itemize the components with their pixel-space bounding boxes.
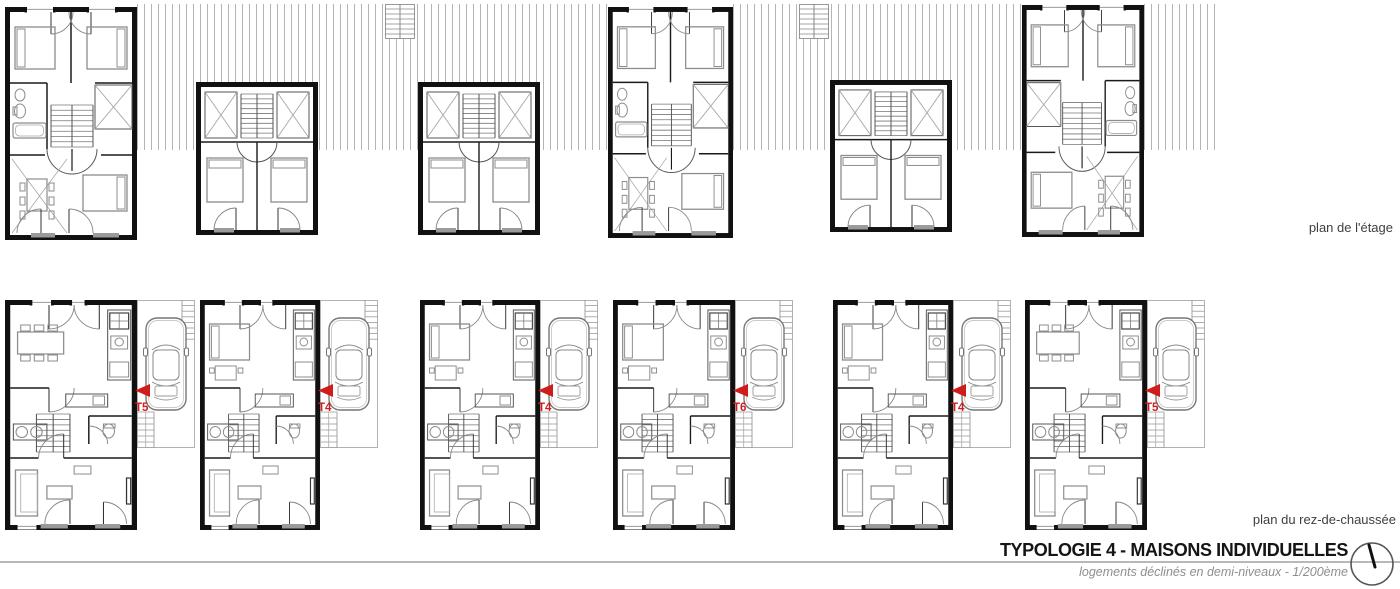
unit-arrow-icon bbox=[951, 384, 967, 397]
north-arrow-icon bbox=[1348, 541, 1396, 589]
unit-arrow-icon bbox=[538, 384, 554, 397]
parking-pad bbox=[137, 300, 195, 448]
house-plan-rdc-1 bbox=[5, 300, 137, 530]
sheet-title: TYPOLOGIE 4 - MAISONS INDIVIDUELLES bbox=[1000, 540, 1348, 561]
house-plan-etage-4 bbox=[608, 7, 733, 238]
plans-layer: T5T4T4T6T4T5 bbox=[0, 0, 1400, 589]
unit-marker: T5 bbox=[135, 384, 165, 414]
unit-marker: T4 bbox=[951, 384, 981, 414]
house-plan-rdc-6 bbox=[1025, 300, 1147, 530]
unit-marker: T4 bbox=[318, 384, 348, 414]
unit-label: T5 bbox=[135, 402, 165, 414]
unit-marker: T6 bbox=[733, 384, 763, 414]
title-rule bbox=[0, 561, 1400, 563]
exterior-stair-icon bbox=[799, 4, 829, 39]
parking-pad bbox=[540, 300, 598, 448]
house-plan-etage-1 bbox=[5, 7, 137, 240]
exterior-stair-icon bbox=[385, 4, 415, 39]
unit-arrow-icon bbox=[135, 384, 151, 397]
floorplan-sheet: T5T4T4T6T4T5 plan de l'étage plan du rez… bbox=[0, 0, 1400, 589]
house-plan-etage-3 bbox=[418, 82, 540, 235]
parking-pad bbox=[953, 300, 1011, 448]
house-plan-rdc-4 bbox=[613, 300, 735, 530]
unit-arrow-icon bbox=[733, 384, 749, 397]
roof-hatch-strip bbox=[1144, 4, 1216, 150]
unit-marker: T5 bbox=[1145, 384, 1175, 414]
unit-label: T5 bbox=[1145, 402, 1175, 414]
parking-pad bbox=[735, 300, 793, 448]
house-plan-rdc-3 bbox=[420, 300, 540, 530]
unit-label: T4 bbox=[538, 402, 568, 414]
house-plan-rdc-5 bbox=[833, 300, 953, 530]
unit-marker: T4 bbox=[538, 384, 568, 414]
house-plan-rdc-2 bbox=[200, 300, 320, 530]
house-plan-etage-2 bbox=[196, 82, 318, 235]
unit-label: T4 bbox=[951, 402, 981, 414]
unit-arrow-icon bbox=[318, 384, 334, 397]
parking-pad bbox=[320, 300, 378, 448]
unit-arrow-icon bbox=[1145, 384, 1161, 397]
caption-plan-etage: plan de l'étage bbox=[1309, 220, 1393, 235]
unit-label: T4 bbox=[318, 402, 348, 414]
house-plan-etage-6 bbox=[1022, 5, 1144, 237]
house-plan-etage-5 bbox=[830, 80, 952, 232]
caption-plan-rdc: plan du rez-de-chaussée bbox=[1253, 512, 1396, 527]
sheet-subtitle: logements déclinés en demi-niveaux - 1/2… bbox=[1079, 565, 1348, 579]
parking-pad bbox=[1147, 300, 1205, 448]
unit-label: T6 bbox=[733, 402, 763, 414]
